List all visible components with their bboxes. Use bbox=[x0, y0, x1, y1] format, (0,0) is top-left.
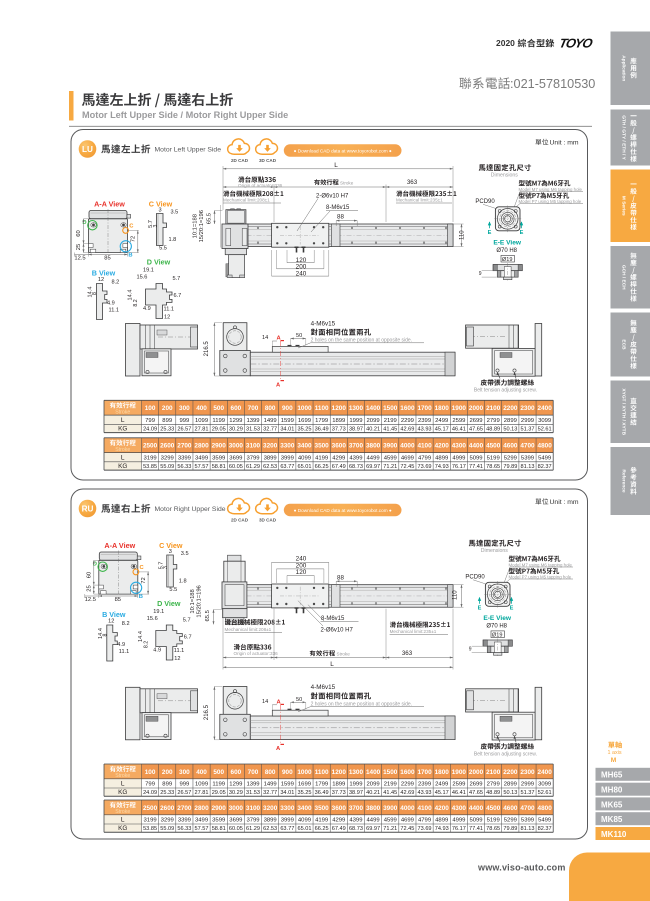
svg-text:1399: 1399 bbox=[246, 418, 259, 424]
svg-text:19.1: 19.1 bbox=[153, 609, 164, 615]
svg-text:1299: 1299 bbox=[229, 782, 242, 788]
svg-text:69.97: 69.97 bbox=[366, 826, 380, 832]
svg-text:1299: 1299 bbox=[229, 418, 242, 424]
svg-text:73.69: 73.69 bbox=[418, 826, 432, 832]
svg-text:3099: 3099 bbox=[538, 418, 551, 424]
svg-text:2200: 2200 bbox=[503, 405, 518, 412]
svg-text:3400: 3400 bbox=[297, 805, 312, 812]
svg-text:4500: 4500 bbox=[486, 443, 501, 450]
svg-text:11.1: 11.1 bbox=[109, 308, 119, 314]
svg-text:35.25: 35.25 bbox=[297, 427, 311, 433]
svg-text:25.33: 25.33 bbox=[160, 790, 174, 796]
svg-text:4399: 4399 bbox=[349, 818, 362, 824]
svg-text:5.5: 5.5 bbox=[159, 246, 167, 252]
svg-text:Ø70 H8: Ø70 H8 bbox=[496, 248, 517, 254]
svg-text:65.01: 65.01 bbox=[297, 826, 311, 832]
svg-text:www.viso-auto.com: www.viso-auto.com bbox=[477, 863, 566, 873]
svg-text:Motor Left Upper Side: Motor Left Upper Side bbox=[155, 147, 222, 154]
svg-text:PCD90: PCD90 bbox=[475, 199, 495, 205]
svg-text:1699: 1699 bbox=[298, 418, 311, 424]
svg-text:3.5: 3.5 bbox=[171, 210, 179, 216]
svg-text:XYGT / XYTH / XYTB: XYGT / XYTH / XYTB bbox=[621, 388, 627, 435]
svg-text:899: 899 bbox=[162, 782, 172, 788]
svg-text:1400: 1400 bbox=[366, 405, 381, 412]
svg-text:GCH / ECH: GCH / ECH bbox=[621, 265, 627, 290]
svg-text:3799: 3799 bbox=[246, 818, 259, 824]
svg-text:1000: 1000 bbox=[297, 405, 312, 412]
svg-text:48.89: 48.89 bbox=[486, 790, 500, 796]
svg-text:3D CAD: 3D CAD bbox=[259, 517, 277, 522]
svg-text:M Series: M Series bbox=[621, 196, 627, 216]
svg-text:3200: 3200 bbox=[263, 443, 278, 450]
svg-text:3600: 3600 bbox=[332, 443, 347, 450]
svg-text:Stroke: Stroke bbox=[115, 773, 130, 779]
svg-text:14: 14 bbox=[262, 699, 268, 705]
svg-text:4600: 4600 bbox=[503, 805, 518, 812]
svg-text:3D CAD: 3D CAD bbox=[259, 158, 277, 163]
svg-text:53.85: 53.85 bbox=[143, 464, 157, 470]
svg-text:85: 85 bbox=[115, 597, 121, 603]
svg-text:2899: 2899 bbox=[504, 418, 517, 424]
svg-text:5399: 5399 bbox=[521, 818, 534, 824]
svg-text:3299: 3299 bbox=[161, 818, 174, 824]
svg-text:45.17: 45.17 bbox=[435, 427, 449, 433]
svg-text:76.17: 76.17 bbox=[452, 826, 466, 832]
svg-text:27.81: 27.81 bbox=[195, 427, 209, 433]
svg-text:78.65: 78.65 bbox=[486, 464, 500, 470]
svg-text:37.73: 37.73 bbox=[332, 427, 346, 433]
svg-text:3399: 3399 bbox=[178, 818, 191, 824]
svg-text:60: 60 bbox=[86, 572, 92, 578]
svg-text:65.5: 65.5 bbox=[207, 213, 213, 224]
svg-text:3099: 3099 bbox=[538, 782, 551, 788]
svg-text:216.5: 216.5 bbox=[204, 704, 210, 720]
svg-text:4100: 4100 bbox=[417, 805, 432, 812]
svg-text:700: 700 bbox=[248, 769, 259, 776]
svg-text:2400: 2400 bbox=[538, 769, 553, 776]
svg-text:800: 800 bbox=[265, 405, 276, 412]
svg-text:81.13: 81.13 bbox=[520, 826, 534, 832]
svg-text:3: 3 bbox=[153, 224, 159, 227]
svg-text:2500: 2500 bbox=[143, 443, 158, 450]
svg-text:3200: 3200 bbox=[263, 805, 278, 812]
svg-text:4999: 4999 bbox=[452, 818, 465, 824]
svg-text:3899: 3899 bbox=[264, 818, 277, 824]
svg-text:E: E bbox=[488, 230, 492, 236]
svg-text:4.9: 4.9 bbox=[117, 642, 125, 648]
svg-text:3800: 3800 bbox=[366, 443, 381, 450]
svg-text:1099: 1099 bbox=[195, 418, 208, 424]
svg-text:4-M6v15: 4-M6v15 bbox=[311, 320, 336, 327]
svg-text:9: 9 bbox=[479, 271, 482, 277]
svg-text:58.81: 58.81 bbox=[212, 826, 226, 832]
svg-text:52.61: 52.61 bbox=[538, 790, 552, 796]
svg-text:B: B bbox=[128, 253, 132, 259]
svg-text:Unit : mm: Unit : mm bbox=[550, 499, 579, 506]
svg-text:3599: 3599 bbox=[212, 818, 225, 824]
svg-text:4.9: 4.9 bbox=[107, 301, 115, 307]
svg-text:12.5: 12.5 bbox=[74, 256, 85, 262]
svg-text:216.5: 216.5 bbox=[204, 341, 210, 357]
svg-text:1200: 1200 bbox=[332, 405, 347, 412]
svg-text:47.65: 47.65 bbox=[469, 427, 483, 433]
svg-text:37.73: 37.73 bbox=[332, 790, 346, 796]
svg-text:1200: 1200 bbox=[332, 769, 347, 776]
svg-text:4200: 4200 bbox=[435, 443, 450, 450]
svg-text:79.89: 79.89 bbox=[503, 826, 517, 832]
svg-text:3699: 3699 bbox=[229, 455, 242, 461]
svg-text:1899: 1899 bbox=[332, 782, 345, 788]
svg-text:PCD90: PCD90 bbox=[465, 574, 485, 580]
svg-text:43.93: 43.93 bbox=[418, 790, 432, 796]
svg-text:9: 9 bbox=[469, 646, 472, 652]
svg-text:Model P7 using M5 tapping hole: Model P7 using M5 tapping hole bbox=[509, 574, 572, 579]
svg-text:10:1=188: 10:1=188 bbox=[193, 214, 199, 238]
svg-text:1899: 1899 bbox=[332, 418, 345, 424]
svg-text:Stroke: Stroke bbox=[115, 447, 130, 453]
svg-text:4299: 4299 bbox=[332, 455, 345, 461]
svg-text:27.81: 27.81 bbox=[195, 790, 209, 796]
svg-text:3399: 3399 bbox=[178, 455, 191, 461]
svg-text:15.6: 15.6 bbox=[147, 616, 158, 622]
svg-text:3999: 3999 bbox=[281, 818, 294, 824]
svg-text:8.2: 8.2 bbox=[133, 299, 139, 306]
svg-text:4600: 4600 bbox=[503, 443, 518, 450]
svg-text:68.73: 68.73 bbox=[349, 826, 363, 832]
svg-text:L: L bbox=[330, 661, 334, 668]
svg-text:5399: 5399 bbox=[521, 455, 534, 461]
svg-text:8-M6v15: 8-M6v15 bbox=[326, 205, 350, 211]
svg-text:363: 363 bbox=[402, 650, 413, 657]
svg-text:68.73: 68.73 bbox=[349, 464, 363, 470]
svg-text:5199: 5199 bbox=[487, 818, 500, 824]
svg-text:2499: 2499 bbox=[435, 418, 448, 424]
svg-text:1800: 1800 bbox=[435, 405, 450, 412]
svg-text:11.1: 11.1 bbox=[174, 648, 184, 654]
svg-text:2999: 2999 bbox=[521, 418, 534, 424]
svg-text:4899: 4899 bbox=[435, 455, 448, 461]
svg-text:Mechanical limit:208±1: Mechanical limit:208±1 bbox=[225, 627, 272, 632]
svg-text:15/20:1=196: 15/20:1=196 bbox=[197, 585, 203, 617]
svg-text:Belt tension adjusting screw.: Belt tension adjusting screw. bbox=[474, 752, 537, 758]
svg-text:77.41: 77.41 bbox=[469, 464, 483, 470]
svg-text:6.7: 6.7 bbox=[184, 635, 192, 641]
svg-text:40.21: 40.21 bbox=[366, 790, 380, 796]
svg-text:4800: 4800 bbox=[538, 443, 553, 450]
svg-text:4000: 4000 bbox=[400, 805, 415, 812]
svg-text:2-Ø6v10 H7: 2-Ø6v10 H7 bbox=[321, 628, 354, 634]
svg-text:8: 8 bbox=[103, 633, 109, 636]
svg-text:999: 999 bbox=[179, 418, 189, 424]
svg-text:1699: 1699 bbox=[298, 782, 311, 788]
svg-text:2700: 2700 bbox=[177, 443, 192, 450]
svg-text:5.7: 5.7 bbox=[173, 276, 181, 282]
svg-text:ECB: ECB bbox=[621, 339, 627, 350]
svg-text:4599: 4599 bbox=[384, 818, 397, 824]
svg-text:51.37: 51.37 bbox=[520, 427, 534, 433]
svg-text:48.89: 48.89 bbox=[486, 427, 500, 433]
svg-text:4399: 4399 bbox=[349, 455, 362, 461]
svg-text:4700: 4700 bbox=[520, 805, 535, 812]
svg-text:5199: 5199 bbox=[487, 455, 500, 461]
svg-text:Model P7 using M5 tapping hole: Model P7 using M5 tapping hole bbox=[519, 199, 582, 204]
svg-text:4500: 4500 bbox=[486, 805, 501, 812]
svg-text:76.17: 76.17 bbox=[452, 464, 466, 470]
svg-text:200: 200 bbox=[162, 405, 173, 412]
svg-text:110: 110 bbox=[460, 230, 466, 240]
svg-text:66.25: 66.25 bbox=[315, 826, 329, 832]
svg-text:3700: 3700 bbox=[349, 443, 364, 450]
svg-text:300: 300 bbox=[179, 769, 190, 776]
svg-text:34.01: 34.01 bbox=[280, 790, 294, 796]
svg-text:12: 12 bbox=[174, 656, 180, 662]
svg-text:38.97: 38.97 bbox=[349, 427, 363, 433]
svg-text:200: 200 bbox=[162, 769, 173, 776]
svg-text:3800: 3800 bbox=[366, 805, 381, 812]
svg-text:12: 12 bbox=[164, 315, 170, 321]
svg-text:57.57: 57.57 bbox=[195, 464, 209, 470]
svg-text:A-A View: A-A View bbox=[94, 200, 125, 209]
svg-text:900: 900 bbox=[282, 405, 293, 412]
svg-text:56.33: 56.33 bbox=[177, 464, 191, 470]
svg-text:11.1: 11.1 bbox=[164, 307, 174, 313]
svg-text:31.53: 31.53 bbox=[246, 427, 260, 433]
svg-text:25.33: 25.33 bbox=[160, 427, 174, 433]
svg-text:1499: 1499 bbox=[264, 418, 277, 424]
svg-text:3700: 3700 bbox=[349, 805, 364, 812]
svg-text:200: 200 bbox=[296, 263, 307, 270]
svg-text:4999: 4999 bbox=[452, 455, 465, 461]
svg-text:Ø19: Ø19 bbox=[492, 632, 503, 638]
svg-text:800: 800 bbox=[265, 769, 276, 776]
svg-text:5299: 5299 bbox=[504, 455, 517, 461]
svg-text:3500: 3500 bbox=[315, 805, 330, 812]
svg-text:KG: KG bbox=[118, 825, 127, 832]
svg-text:8: 8 bbox=[92, 292, 98, 295]
svg-text:12: 12 bbox=[98, 277, 104, 283]
svg-text:1000: 1000 bbox=[297, 769, 312, 776]
svg-text:40.21: 40.21 bbox=[366, 427, 380, 433]
svg-text:56.33: 56.33 bbox=[177, 826, 191, 832]
svg-text:8-M6v15: 8-M6v15 bbox=[321, 616, 345, 622]
svg-text:1900: 1900 bbox=[452, 405, 467, 412]
svg-text:1399: 1399 bbox=[246, 782, 259, 788]
svg-text:1900: 1900 bbox=[452, 769, 467, 776]
svg-text:3999: 3999 bbox=[281, 455, 294, 461]
svg-text:4.9: 4.9 bbox=[153, 648, 161, 654]
svg-text:63.77: 63.77 bbox=[280, 826, 294, 832]
svg-text:67.49: 67.49 bbox=[332, 826, 346, 832]
svg-text:600: 600 bbox=[231, 769, 242, 776]
svg-text:5499: 5499 bbox=[538, 455, 551, 461]
svg-text:MK85: MK85 bbox=[601, 815, 623, 824]
svg-text:46.41: 46.41 bbox=[452, 790, 466, 796]
svg-text:5499: 5499 bbox=[538, 818, 551, 824]
svg-text:8.2: 8.2 bbox=[112, 280, 120, 286]
svg-text:4699: 4699 bbox=[401, 455, 414, 461]
svg-text:3300: 3300 bbox=[280, 805, 295, 812]
svg-text:1300: 1300 bbox=[349, 769, 364, 776]
svg-text:2000: 2000 bbox=[469, 405, 484, 412]
svg-text:3799: 3799 bbox=[246, 455, 259, 461]
svg-text:67.49: 67.49 bbox=[332, 464, 346, 470]
svg-text:1300: 1300 bbox=[349, 405, 364, 412]
svg-text:36.49: 36.49 bbox=[315, 790, 329, 796]
svg-text:Motor Right Upper Side: Motor Right Upper Side bbox=[155, 506, 226, 513]
svg-text:LU: LU bbox=[82, 145, 93, 154]
svg-text:2600: 2600 bbox=[160, 805, 175, 812]
svg-text:KG: KG bbox=[118, 463, 127, 470]
svg-text:4499: 4499 bbox=[367, 818, 380, 824]
svg-text:900: 900 bbox=[282, 769, 293, 776]
svg-text:74.93: 74.93 bbox=[435, 826, 449, 832]
svg-text:61.29: 61.29 bbox=[246, 464, 260, 470]
svg-text:2599: 2599 bbox=[452, 418, 465, 424]
svg-text:72: 72 bbox=[141, 577, 147, 583]
svg-text:55.09: 55.09 bbox=[160, 826, 174, 832]
svg-text:4299: 4299 bbox=[332, 818, 345, 824]
svg-text:14.4: 14.4 bbox=[138, 631, 144, 642]
svg-text:● Download CAD data at www.toy: ● Download CAD data at www.toyorobot.com… bbox=[294, 148, 392, 153]
svg-text:600: 600 bbox=[231, 405, 242, 412]
svg-text:2400: 2400 bbox=[538, 405, 553, 412]
svg-text:26.57: 26.57 bbox=[177, 427, 191, 433]
svg-text:52.61: 52.61 bbox=[538, 427, 552, 433]
svg-text:3300: 3300 bbox=[280, 443, 295, 450]
svg-text:3900: 3900 bbox=[383, 443, 398, 450]
svg-text:57.57: 57.57 bbox=[195, 826, 209, 832]
svg-text:● Download CAD data at www.toy: ● Download CAD data at www.toyorobot.com… bbox=[294, 508, 392, 513]
svg-text:1799: 1799 bbox=[315, 782, 328, 788]
svg-text:3: 3 bbox=[158, 208, 161, 214]
svg-text:3900: 3900 bbox=[383, 805, 398, 812]
svg-text:3.5: 3.5 bbox=[181, 551, 189, 557]
svg-text:4100: 4100 bbox=[417, 443, 432, 450]
svg-text:Stroke: Stroke bbox=[337, 652, 351, 657]
svg-text:2199: 2199 bbox=[384, 418, 397, 424]
svg-text:2-Ø6v10 H7: 2-Ø6v10 H7 bbox=[316, 194, 349, 200]
svg-text:3199: 3199 bbox=[144, 818, 157, 824]
svg-text:D View: D View bbox=[157, 599, 181, 608]
svg-text:3499: 3499 bbox=[195, 455, 208, 461]
svg-text:74.93: 74.93 bbox=[435, 464, 449, 470]
svg-text:4.9: 4.9 bbox=[143, 306, 151, 312]
svg-text:6.7: 6.7 bbox=[174, 293, 182, 299]
svg-text:700: 700 bbox=[248, 405, 259, 412]
svg-text:120: 120 bbox=[296, 569, 307, 576]
svg-text:2100: 2100 bbox=[486, 769, 501, 776]
svg-text:71.21: 71.21 bbox=[383, 464, 397, 470]
svg-text:50: 50 bbox=[296, 333, 302, 339]
svg-text:2020: 2020 bbox=[496, 38, 515, 48]
svg-text:2D CAD: 2D CAD bbox=[231, 158, 249, 163]
svg-text:100: 100 bbox=[145, 769, 156, 776]
svg-text:2900: 2900 bbox=[212, 443, 227, 450]
svg-text:Stroke: Stroke bbox=[340, 181, 354, 186]
svg-text:4699: 4699 bbox=[401, 818, 414, 824]
svg-text:29.05: 29.05 bbox=[212, 790, 226, 796]
svg-text:25: 25 bbox=[76, 244, 82, 250]
svg-text:E-E View: E-E View bbox=[493, 239, 522, 246]
svg-text:110: 110 bbox=[453, 590, 459, 600]
svg-text:4200: 4200 bbox=[435, 805, 450, 812]
svg-text:1199: 1199 bbox=[212, 418, 225, 424]
svg-text:1.8: 1.8 bbox=[179, 579, 187, 585]
svg-text:4599: 4599 bbox=[384, 455, 397, 461]
svg-text:60: 60 bbox=[76, 230, 82, 236]
svg-text:L: L bbox=[334, 162, 338, 169]
svg-text:1999: 1999 bbox=[349, 782, 362, 788]
svg-text:1199: 1199 bbox=[212, 782, 225, 788]
svg-text:4-M6v15: 4-M6v15 bbox=[311, 684, 336, 691]
svg-text:11.1: 11.1 bbox=[119, 649, 129, 655]
svg-text:73.69: 73.69 bbox=[418, 464, 432, 470]
svg-text:Origin of actuator:336: Origin of actuator:336 bbox=[234, 651, 279, 656]
svg-text:3600: 3600 bbox=[332, 805, 347, 812]
svg-text:53.85: 53.85 bbox=[143, 826, 157, 832]
svg-text:E: E bbox=[520, 230, 524, 236]
svg-text:Reference: Reference bbox=[621, 469, 627, 493]
svg-text:2699: 2699 bbox=[469, 782, 482, 788]
svg-text:3000: 3000 bbox=[229, 443, 244, 450]
svg-text:60.05: 60.05 bbox=[229, 464, 243, 470]
svg-text:Ø70 H8: Ø70 H8 bbox=[486, 624, 507, 630]
svg-text:1799: 1799 bbox=[315, 418, 328, 424]
svg-text:4899: 4899 bbox=[435, 818, 448, 824]
svg-text:69.97: 69.97 bbox=[366, 464, 380, 470]
svg-text:51.37: 51.37 bbox=[520, 790, 534, 796]
svg-text:2599: 2599 bbox=[452, 782, 465, 788]
svg-text:Model M7 using M6 tapping hole: Model M7 using M6 tapping hole bbox=[519, 187, 583, 192]
svg-text:2099: 2099 bbox=[367, 782, 380, 788]
svg-text:4000: 4000 bbox=[400, 443, 415, 450]
svg-text:E: E bbox=[510, 605, 514, 611]
svg-text:12.5: 12.5 bbox=[85, 597, 96, 603]
svg-text:41.45: 41.45 bbox=[383, 790, 397, 796]
svg-text:1600: 1600 bbox=[400, 769, 415, 776]
svg-text:50.13: 50.13 bbox=[503, 427, 517, 433]
svg-text:42.69: 42.69 bbox=[400, 790, 414, 796]
svg-text:2099: 2099 bbox=[367, 418, 380, 424]
svg-text:2499: 2499 bbox=[435, 782, 448, 788]
svg-text:45.17: 45.17 bbox=[435, 790, 449, 796]
svg-text:Unit : mm: Unit : mm bbox=[550, 140, 579, 147]
svg-text:3: 3 bbox=[163, 566, 169, 569]
svg-text:4499: 4499 bbox=[367, 455, 380, 461]
svg-text:Application: Application bbox=[621, 55, 627, 81]
svg-text:46.41: 46.41 bbox=[452, 427, 466, 433]
svg-text:1600: 1600 bbox=[400, 405, 415, 412]
svg-text:GTH / GTY / ETH / Y: GTH / GTY / ETH / Y bbox=[621, 115, 627, 160]
svg-text:72: 72 bbox=[131, 236, 137, 242]
svg-text:30.29: 30.29 bbox=[229, 427, 243, 433]
svg-text:2899: 2899 bbox=[504, 782, 517, 788]
svg-text:2800: 2800 bbox=[194, 805, 209, 812]
svg-text:85: 85 bbox=[104, 256, 110, 262]
svg-text:2299: 2299 bbox=[401, 418, 414, 424]
svg-text:14: 14 bbox=[262, 335, 268, 341]
svg-text:Model M7 using M6 tapping hole: Model M7 using M6 tapping hole bbox=[509, 562, 573, 567]
svg-text:Mechanical limit:235±1: Mechanical limit:235±1 bbox=[390, 629, 437, 634]
svg-text:A-A View: A-A View bbox=[104, 541, 135, 550]
svg-text:2100: 2100 bbox=[486, 405, 501, 412]
svg-text:3: 3 bbox=[169, 549, 172, 555]
svg-text:Stroke: Stroke bbox=[115, 410, 130, 416]
svg-text:E: E bbox=[478, 605, 482, 611]
svg-text:100: 100 bbox=[145, 405, 156, 412]
svg-text:24.09: 24.09 bbox=[143, 427, 157, 433]
svg-text:2800: 2800 bbox=[194, 443, 209, 450]
